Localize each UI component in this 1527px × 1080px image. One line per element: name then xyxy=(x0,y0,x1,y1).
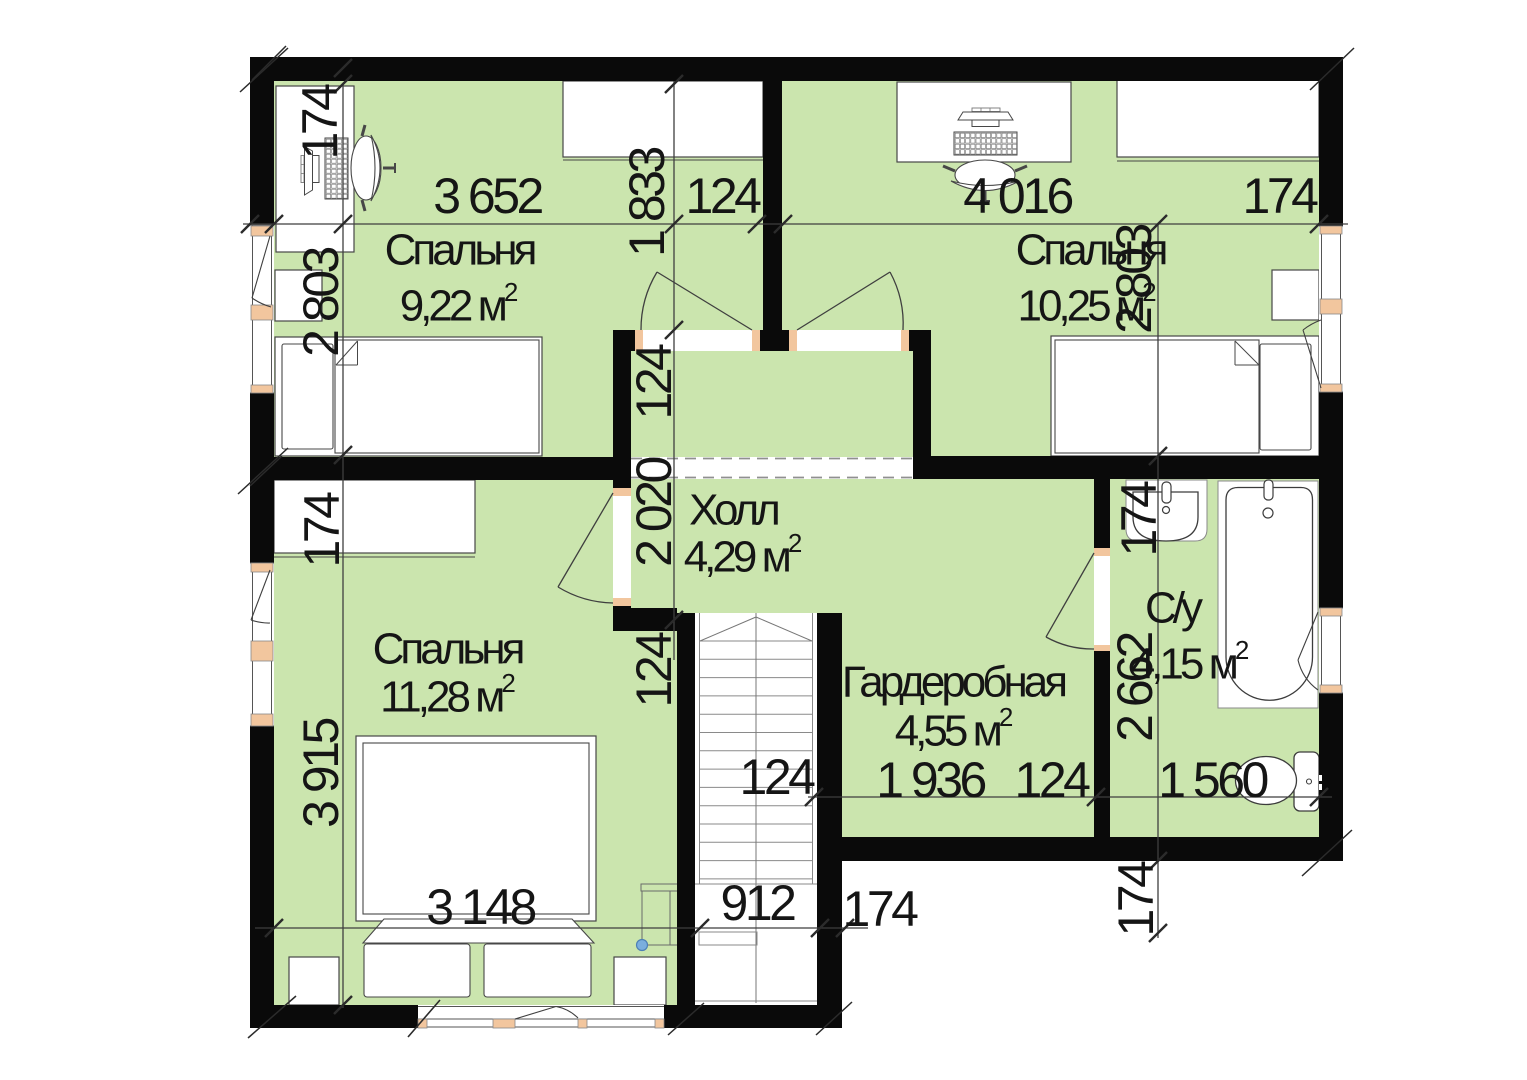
svg-text:4,29 м2: 4,29 м2 xyxy=(684,528,803,582)
svg-text:Холл: Холл xyxy=(689,486,778,535)
svg-text:1 560: 1 560 xyxy=(1158,752,1267,808)
svg-text:912: 912 xyxy=(721,875,796,931)
svg-text:124: 124 xyxy=(1015,752,1091,808)
svg-text:174: 174 xyxy=(1111,481,1167,557)
svg-text:Спальня: Спальня xyxy=(373,625,523,674)
svg-text:174: 174 xyxy=(294,492,350,568)
svg-text:124: 124 xyxy=(626,344,682,420)
svg-text:1 833: 1 833 xyxy=(619,147,675,256)
svg-text:11,28 м2: 11,28 м2 xyxy=(380,668,516,722)
svg-text:174: 174 xyxy=(843,881,919,937)
svg-text:2 803: 2 803 xyxy=(1106,224,1162,333)
svg-text:2 020: 2 020 xyxy=(626,457,682,566)
svg-text:124: 124 xyxy=(626,632,682,708)
svg-text:1 936: 1 936 xyxy=(876,752,985,808)
svg-text:2 803: 2 803 xyxy=(293,247,349,356)
svg-text:174: 174 xyxy=(1243,168,1319,224)
svg-text:174: 174 xyxy=(292,84,348,160)
svg-text:4,55 м2: 4,55 м2 xyxy=(895,702,1014,756)
svg-text:3 652: 3 652 xyxy=(433,168,542,224)
svg-text:2 662: 2 662 xyxy=(1107,632,1163,741)
svg-text:Спальня: Спальня xyxy=(385,226,535,275)
svg-text:124: 124 xyxy=(686,168,762,224)
svg-text:3 915: 3 915 xyxy=(293,718,349,827)
svg-text:9,22 м2: 9,22 м2 xyxy=(400,277,519,331)
svg-text:3 148: 3 148 xyxy=(426,879,535,935)
svg-text:174: 174 xyxy=(1108,861,1164,937)
svg-text:С/у: С/у xyxy=(1145,584,1203,633)
svg-text:Гардеробная: Гардеробная xyxy=(842,658,1065,707)
svg-text:4 016: 4 016 xyxy=(963,168,1072,224)
svg-text:124: 124 xyxy=(740,749,816,805)
